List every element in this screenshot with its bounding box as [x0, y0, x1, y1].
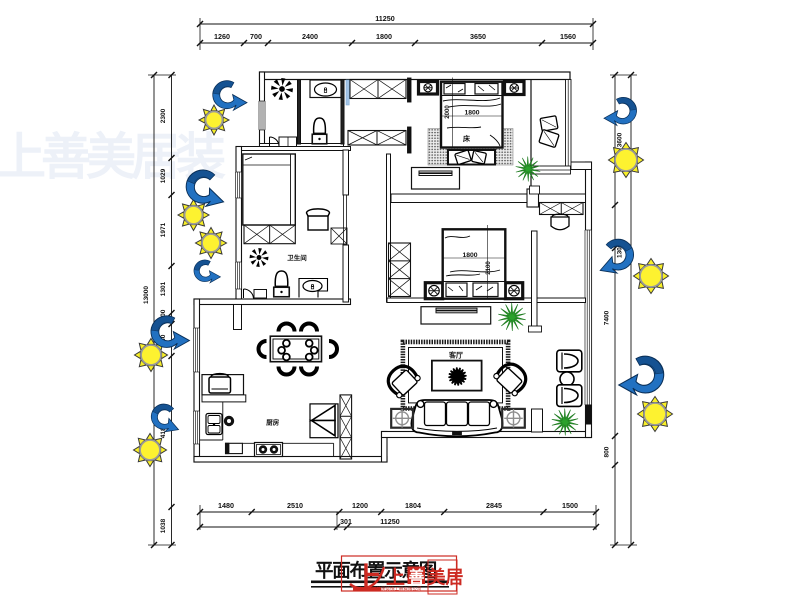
svg-text:厨房: 厨房	[266, 418, 280, 427]
svg-text:2400: 2400	[302, 32, 318, 41]
svg-text:床: 床	[463, 134, 471, 143]
svg-text:1800: 1800	[376, 32, 392, 41]
svg-text:1260: 1260	[214, 32, 230, 41]
svg-text:1560: 1560	[560, 32, 576, 41]
svg-text:1038: 1038	[160, 518, 167, 533]
svg-text:700: 700	[250, 32, 262, 41]
svg-text:1480: 1480	[218, 501, 234, 510]
svg-text:1804: 1804	[405, 501, 421, 510]
svg-text:3600: 3600	[617, 132, 624, 147]
svg-text:13000: 13000	[143, 286, 150, 304]
svg-text:2845: 2845	[486, 501, 502, 510]
svg-text:1800: 1800	[462, 252, 477, 259]
svg-text:7400: 7400	[604, 310, 611, 325]
svg-text:1500: 1500	[562, 501, 578, 510]
svg-text:800: 800	[604, 446, 611, 457]
svg-text:1800: 1800	[464, 110, 479, 117]
svg-text:上: 上	[386, 567, 405, 589]
svg-text:1029: 1029	[160, 168, 167, 183]
svg-text:石家庄上善美居装饰工程有限公司: 石家庄上善美居装饰工程有限公司	[354, 586, 422, 593]
svg-text:2510: 2510	[287, 501, 303, 510]
svg-text:3650: 3650	[470, 32, 486, 41]
svg-text:2100: 2100	[486, 261, 492, 275]
svg-text:301: 301	[340, 519, 352, 526]
svg-text:1971: 1971	[160, 222, 167, 237]
svg-text:11250: 11250	[380, 517, 400, 526]
svg-text:卫生间: 卫生间	[287, 253, 307, 262]
svg-text:1200: 1200	[352, 501, 368, 510]
svg-text:1301: 1301	[160, 281, 167, 296]
svg-text:2000: 2000	[445, 105, 451, 119]
svg-text:11250: 11250	[375, 14, 395, 23]
svg-text:美居: 美居	[428, 567, 464, 588]
svg-text:客厅: 客厅	[448, 351, 463, 360]
svg-text:2300: 2300	[160, 108, 167, 123]
svg-text:善: 善	[409, 568, 425, 587]
